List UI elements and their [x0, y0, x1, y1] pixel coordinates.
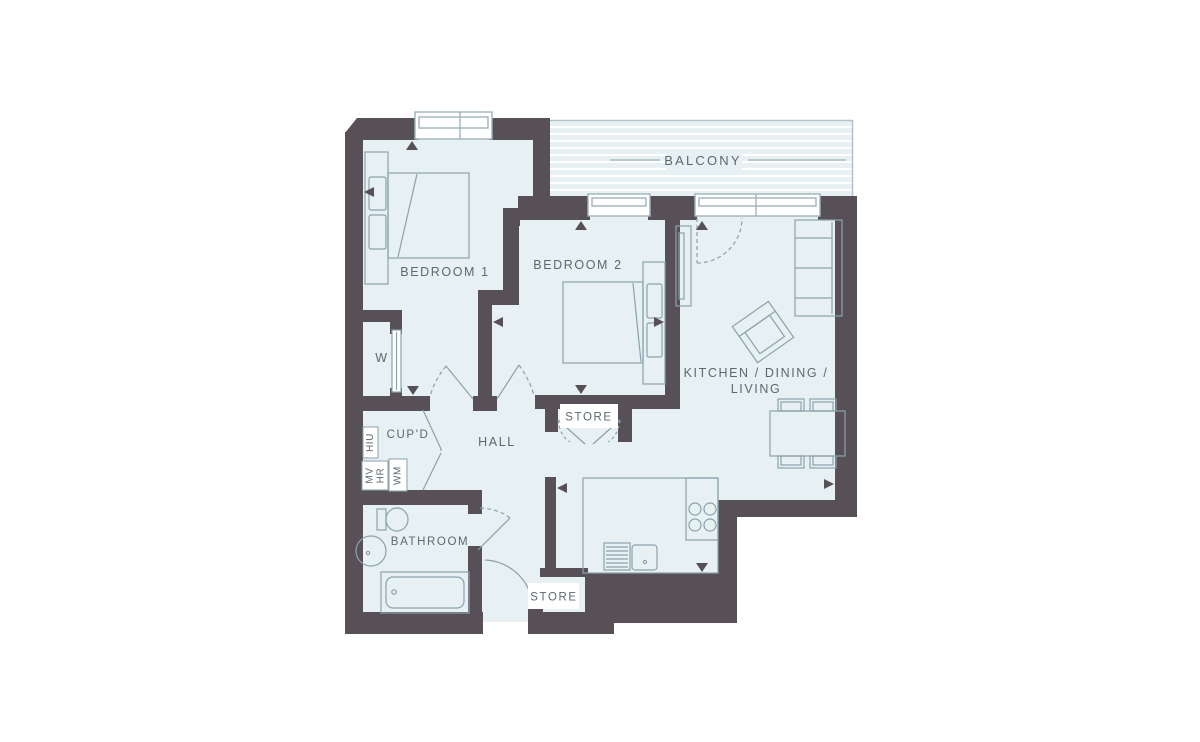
floorplan-drawing: BALCONY	[0, 0, 1200, 742]
wardrobe-label: W	[375, 351, 388, 365]
cupboard-label: CUP'D	[387, 429, 430, 441]
bedroom2-window	[588, 194, 650, 216]
wall-bathroom-right-top	[468, 490, 482, 514]
kitchen-window-door	[695, 194, 820, 216]
kitchen-label-line1: KITCHEN / DINING /	[684, 366, 829, 380]
hr-label: HR	[376, 468, 387, 484]
wall-top-a	[357, 118, 418, 140]
wall-under-balcony-a	[518, 196, 590, 220]
wall-left-exterior	[345, 132, 363, 634]
wall-bed2-kitchen-divider	[665, 212, 680, 409]
wall-bathroom-top	[352, 490, 482, 505]
wall-store-upper-left	[545, 400, 558, 432]
mv-label: MV	[365, 467, 376, 483]
wall-living-bottom	[733, 500, 857, 517]
wall-kitchen-left	[545, 477, 556, 577]
wall-bed1-hall-divider	[478, 290, 492, 400]
wardrobe-sliding-door-icon	[392, 330, 401, 392]
bathroom-label: BATHROOM	[391, 536, 469, 548]
wall-door-cap	[473, 396, 497, 411]
kitchen-label-line2: LIVING	[731, 382, 782, 396]
store-upper-label: STORE	[565, 412, 612, 424]
wall-right-exterior	[835, 196, 857, 517]
wm-label: WM	[393, 466, 404, 485]
wall-bottom-a	[345, 612, 483, 634]
balcony-label: BALCONY	[664, 153, 742, 168]
hiu-label: HIU	[365, 433, 376, 452]
wall-balcony-left	[533, 118, 550, 200]
floorplan-page: BALCONY	[0, 0, 1200, 742]
bedroom1-label: BEDROOM 1	[400, 265, 489, 279]
hall-label: HALL	[478, 435, 516, 449]
bedroom1-window	[415, 112, 492, 139]
wall-bed1-bed2-divider	[503, 208, 519, 298]
bedroom2-label: BEDROOM 2	[533, 258, 622, 272]
balcony: BALCONY	[545, 120, 853, 196]
store-entry-label: STORE	[530, 592, 577, 604]
